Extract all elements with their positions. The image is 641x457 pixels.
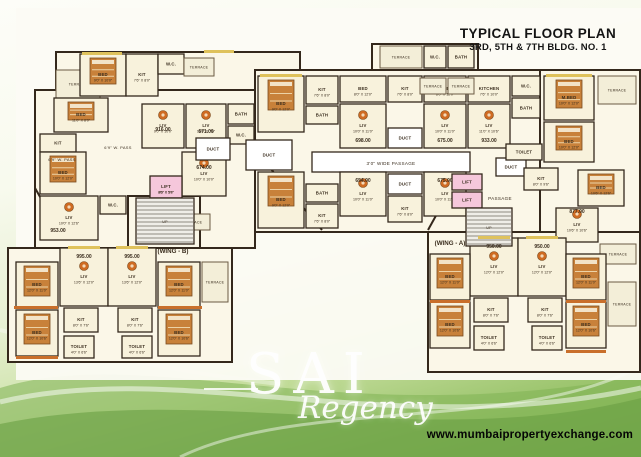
- svg-text:8'0" X 7'6": 8'0" X 7'6": [127, 324, 144, 328]
- svg-text:BED: BED: [58, 170, 68, 175]
- room-bed: BED10'6" X 12'6": [578, 170, 624, 206]
- svg-text:KIT: KIT: [138, 72, 146, 77]
- unit-area: 950.00: [534, 244, 550, 250]
- website-url: www.mumbaipropertyexchange.com: [427, 429, 633, 441]
- svg-text:W.C.: W.C.: [521, 84, 531, 89]
- room-bed: BED9'0" X 10'0": [80, 54, 126, 96]
- svg-text:DUCT: DUCT: [263, 153, 276, 158]
- room-terrace: TERRACE: [598, 76, 636, 104]
- svg-text:LIV: LIV: [485, 123, 492, 128]
- room-bed: BED12'0" X 10'6": [566, 302, 606, 348]
- unit-area: 877.00: [569, 209, 585, 215]
- svg-text:LIV: LIV: [490, 264, 497, 269]
- svg-text:10'0" X 12'0": 10'0" X 12'0": [559, 102, 580, 106]
- room-bed: BED8'0" X 12'0": [340, 76, 386, 102]
- room-kit: KIT7'6" X 8'0": [126, 54, 158, 96]
- svg-text:TERRACE: TERRACE: [190, 66, 209, 70]
- svg-text:13'6" X 12'0": 13'6" X 12'0": [74, 281, 95, 285]
- svg-text:BED: BED: [445, 322, 455, 327]
- svg-text:KIT: KIT: [401, 86, 409, 91]
- svg-text:BATH: BATH: [455, 55, 467, 60]
- room-toilet: TOILET4'0" X 6'6": [64, 336, 94, 358]
- svg-text:7'6" X 8'0": 7'6" X 8'0": [397, 93, 414, 97]
- svg-text:TERRACE: TERRACE: [613, 303, 632, 307]
- room-bed: BED9'0" X 12'0": [258, 76, 304, 132]
- svg-text:KIT: KIT: [487, 307, 495, 312]
- svg-text:10'0" X 12'0": 10'0" X 12'0": [559, 146, 580, 150]
- svg-text:TERRACE: TERRACE: [392, 56, 411, 60]
- svg-text:LIV: LIV: [202, 123, 209, 128]
- page-title: TYPICAL FLOOR PLAN: [438, 26, 638, 41]
- svg-text:BED: BED: [32, 282, 42, 287]
- svg-text:TOILET: TOILET: [481, 335, 498, 340]
- svg-text:KIT: KIT: [54, 141, 62, 146]
- svg-text:9'0" X 12'0": 9'0" X 12'0": [272, 108, 291, 112]
- svg-text:8'0" X 12'0": 8'0" X 12'0": [354, 93, 373, 97]
- room-bath: BATH: [228, 104, 254, 124]
- room-bed: BED11'0" X 8'0": [54, 98, 108, 132]
- svg-text:BED: BED: [564, 139, 574, 144]
- svg-text:DUCT: DUCT: [505, 165, 518, 170]
- room-duct: DUCT: [388, 174, 422, 194]
- svg-text:4'0" X 6'6": 4'0" X 6'6": [481, 342, 498, 346]
- unit-area: 671.00: [198, 129, 214, 135]
- svg-text:BED: BED: [276, 197, 286, 202]
- unit-area: 950.00: [486, 244, 502, 250]
- room-liv: LIV9'0" X 10'0": [142, 104, 184, 148]
- unit-area: 675.00: [437, 138, 453, 144]
- svg-text:12'0" X 12'0": 12'0" X 12'0": [532, 271, 553, 275]
- svg-text:8'0" X 7'6": 8'0" X 7'6": [73, 324, 90, 328]
- svg-text:LIFT: LIFT: [462, 180, 472, 185]
- room-duct: DUCT: [388, 128, 422, 148]
- svg-text:BATH: BATH: [235, 112, 247, 117]
- unit-area: 675.00: [437, 178, 453, 184]
- svg-text:7'6" X 10'0": 7'6" X 10'0": [480, 93, 499, 97]
- svg-text:BED: BED: [358, 86, 368, 91]
- svg-text:BED: BED: [445, 274, 455, 279]
- svg-text:LIV: LIV: [359, 191, 366, 196]
- room-w-c-: W.C.: [512, 76, 540, 96]
- svg-text:4'0" X 6'6": 4'0" X 6'6": [71, 351, 88, 355]
- room-kit: KIT8'0" X 7'6": [474, 298, 508, 322]
- room-bed: BED10'0" X 12'0": [544, 122, 594, 162]
- svg-text:12'0" X 10'6": 12'0" X 10'6": [27, 337, 48, 341]
- svg-text:BED: BED: [276, 101, 286, 106]
- svg-text:LIV: LIV: [128, 274, 135, 279]
- room-toilet: TOILET4'0" X 6'6": [532, 326, 562, 350]
- svg-text:10'0" X 11'0": 10'0" X 11'0": [435, 130, 456, 134]
- svg-text:11'0" X 10'6": 11'0" X 10'6": [479, 130, 500, 134]
- svg-text:TERRACE: TERRACE: [609, 253, 628, 257]
- svg-text:DUCT: DUCT: [207, 147, 220, 152]
- room-toilet: TOILET4'0" X 6'6": [122, 336, 152, 358]
- unit-area: 654.00: [355, 178, 371, 184]
- unit-area: 995.00: [124, 254, 140, 260]
- svg-text:8'6" X 5'0": 8'6" X 5'0": [159, 191, 173, 195]
- svg-text:11'0" X 8'0": 11'0" X 8'0": [72, 119, 91, 123]
- svg-text:7'6" X 8'0": 7'6" X 8'0": [134, 79, 151, 83]
- room-bed: BED12'0" X 11'0": [430, 254, 470, 300]
- svg-text:KITCHEN: KITCHEN: [479, 86, 500, 91]
- svg-text:TOILET: TOILET: [539, 335, 556, 340]
- room-duct: DUCT: [246, 140, 292, 170]
- room-bath: BATH: [306, 106, 338, 124]
- room-terrace: TERRACE: [448, 78, 474, 94]
- room-kit: KIT8'0" X 7'6": [118, 308, 152, 332]
- room-bed: BED12'0" X 10'6": [16, 310, 58, 356]
- svg-text:M.BED: M.BED: [562, 95, 577, 100]
- svg-text:KIT: KIT: [537, 176, 545, 181]
- svg-text:LIFT: LIFT: [161, 184, 171, 189]
- unit-area: 916.00: [155, 127, 171, 133]
- svg-text:12'0" X 11'0": 12'0" X 11'0": [576, 281, 597, 285]
- room-lift: LIFT: [452, 174, 482, 190]
- room-bed: BED9'0" X 12'0": [258, 172, 304, 228]
- wing-label: (WING - A): [435, 240, 466, 247]
- svg-text:7'6" X 8'0": 7'6" X 8'0": [314, 94, 331, 98]
- page-subtitle: 3RD, 5TH & 7TH BLDG. NO. 1: [438, 42, 638, 53]
- svg-text:LIV: LIV: [80, 274, 87, 279]
- svg-text:3'0" WIDE PASSAGE: 3'0" WIDE PASSAGE: [367, 161, 416, 166]
- svg-text:KIT: KIT: [318, 213, 326, 218]
- svg-text:PASSAGE: PASSAGE: [488, 196, 512, 201]
- svg-text:UP: UP: [162, 220, 168, 224]
- svg-text:8'0" X 9'6": 8'0" X 9'6": [533, 183, 550, 187]
- svg-text:DUCT: DUCT: [399, 182, 412, 187]
- floor-plan-svg: TERRACEBED9'0" X 10'0"KIT7'6" X 8'0"W.C.…: [0, 0, 641, 457]
- svg-text:BATH: BATH: [316, 191, 328, 196]
- room-kit: KIT7'6" X 8'0": [306, 204, 338, 228]
- svg-text:BED: BED: [596, 185, 606, 190]
- room-bed: BED12'0" X 11'0": [158, 262, 200, 308]
- svg-text:W.C.: W.C.: [430, 55, 440, 60]
- svg-text:KIT: KIT: [541, 307, 549, 312]
- svg-text:W.C.: W.C.: [108, 203, 118, 208]
- svg-text:TERRACE: TERRACE: [424, 85, 443, 89]
- svg-text:BED: BED: [174, 330, 184, 335]
- room-liv: LIV10'0" X 12'6": [40, 196, 98, 240]
- room-duct: DUCT: [196, 138, 230, 160]
- svg-text:9'0" X 12'0": 9'0" X 12'0": [272, 204, 291, 208]
- svg-text:W.C.: W.C.: [236, 133, 246, 138]
- room-kit: KIT7'6" X 8'0": [388, 76, 422, 102]
- svg-text:TERRACE: TERRACE: [608, 89, 627, 93]
- svg-text:8'0" X 7'6": 8'0" X 7'6": [483, 314, 500, 318]
- svg-text:12'0" X 10'6": 12'0" X 10'6": [440, 329, 461, 333]
- svg-text:6'9" W. PASS: 6'9" W. PASS: [104, 145, 132, 150]
- room-duct: DUCT: [496, 158, 526, 176]
- room-bath: BATH: [306, 184, 338, 202]
- svg-text:12'0" X 10'6": 12'0" X 10'6": [576, 329, 597, 333]
- svg-text:TERRACE: TERRACE: [206, 281, 225, 285]
- svg-text:KIT: KIT: [401, 206, 409, 211]
- room-terrace: TERRACE: [202, 262, 228, 302]
- room-toilet: TOILET4'0" X 6'6": [474, 326, 504, 350]
- svg-text:UP: UP: [486, 226, 492, 230]
- svg-text:W.C.: W.C.: [166, 62, 176, 67]
- room-terrace: TERRACE: [184, 58, 214, 76]
- room-kit: KIT7'6" X 8'0": [388, 196, 422, 222]
- svg-text:10'0" X 11'0": 10'0" X 11'0": [353, 130, 374, 134]
- room-kit: KIT8'0" X 9'6": [524, 168, 558, 190]
- svg-text:12'0" X 10'6": 12'0" X 10'6": [169, 337, 190, 341]
- svg-text:7'6" X 8'0": 7'6" X 8'0": [314, 220, 331, 224]
- svg-text:LIV: LIV: [441, 123, 448, 128]
- room-m-bed: M.BED10'0" X 12'0": [544, 76, 594, 120]
- room-kit: KIT: [40, 134, 76, 152]
- title-block: TYPICAL FLOOR PLAN 3RD, 5TH & 7TH BLDG. …: [438, 26, 638, 53]
- svg-text:9'0" X 10'0": 9'0" X 10'0": [94, 79, 113, 83]
- svg-text:12'0" X 11'0": 12'0" X 11'0": [27, 289, 48, 293]
- room-kit: KIT8'0" X 7'6": [64, 308, 98, 332]
- room-terrace: TERRACE: [608, 282, 636, 326]
- room-terrace: TERRACE: [380, 46, 422, 68]
- svg-text:BED: BED: [581, 322, 591, 327]
- room-lift: LIFT8'6" X 5'0"8'6" X 5'0": [150, 176, 182, 198]
- room-bed: BED12'0" X 11'0": [566, 254, 606, 300]
- svg-text:BED: BED: [98, 72, 108, 77]
- unit-area: 674.00: [196, 165, 212, 171]
- room-toilet: TOILET: [506, 144, 542, 160]
- svg-text:10'0" X 11'0": 10'0" X 11'0": [353, 198, 374, 202]
- svg-text:BATH: BATH: [316, 113, 328, 118]
- svg-text:LIFT: LIFT: [462, 198, 472, 203]
- svg-text:TERRACE: TERRACE: [452, 85, 471, 89]
- svg-text:KIT: KIT: [318, 87, 326, 92]
- wing-label: (WING - B): [158, 248, 189, 255]
- svg-text:12'0" X 11'0": 12'0" X 11'0": [169, 289, 190, 293]
- room-w-c-: W.C.: [100, 196, 126, 214]
- room-w-c-: W.C.: [158, 54, 184, 74]
- svg-text:8'0" X 7'6": 8'0" X 7'6": [537, 314, 554, 318]
- svg-text:10'6" X 12'6": 10'6" X 12'6": [591, 192, 612, 196]
- svg-text:LIV: LIV: [359, 123, 366, 128]
- svg-text:10'0" X 10'0": 10'0" X 10'0": [194, 178, 215, 182]
- svg-text:TOILET: TOILET: [71, 344, 88, 349]
- room-terrace: TERRACE: [420, 78, 446, 94]
- svg-text:4'0" X 6'6": 4'0" X 6'6": [129, 351, 146, 355]
- svg-text:13'6" X 12'0": 13'6" X 12'0": [122, 281, 143, 285]
- svg-text:12'0" X 12'0": 12'0" X 12'0": [484, 271, 505, 275]
- svg-text:TOILET: TOILET: [516, 150, 533, 155]
- svg-text:KIT: KIT: [131, 317, 139, 322]
- unit-area: 995.00: [76, 254, 92, 260]
- room-bed: BED12'0" X 10'6": [158, 310, 200, 356]
- svg-text:BED: BED: [581, 274, 591, 279]
- svg-text:LIV: LIV: [573, 222, 580, 227]
- svg-text:LIV: LIV: [538, 264, 545, 269]
- svg-text:10'0" X 12'0": 10'0" X 12'0": [53, 177, 74, 181]
- unit-area: 933.00: [481, 138, 497, 144]
- svg-text:BED: BED: [76, 112, 86, 117]
- svg-text:6'9" W. PASS: 6'9" W. PASS: [48, 157, 76, 162]
- unit-area: 698.00: [355, 138, 371, 144]
- svg-text:BED: BED: [174, 282, 184, 287]
- room-lift: LIFT: [452, 192, 482, 208]
- room-bath: BATH: [512, 98, 540, 118]
- svg-text:10'6" X 10'6": 10'6" X 10'6": [567, 229, 588, 233]
- svg-text:7'6" X 8'0": 7'6" X 8'0": [397, 213, 414, 217]
- room-bed: BED12'0" X 10'6": [430, 302, 470, 348]
- svg-text:12'0" X 11'0": 12'0" X 11'0": [440, 281, 461, 285]
- room-bed: BED12'0" X 11'0": [16, 262, 58, 308]
- svg-text:KIT: KIT: [77, 317, 85, 322]
- svg-text:10'0" X 12'6": 10'0" X 12'6": [59, 222, 80, 226]
- svg-text:4'0" X 6'6": 4'0" X 6'6": [539, 342, 556, 346]
- svg-text:DUCT: DUCT: [399, 136, 412, 141]
- unit-area: 953.00: [50, 228, 66, 234]
- svg-text:BATH: BATH: [520, 106, 532, 111]
- room-kit: KIT8'0" X 7'6": [528, 298, 562, 322]
- svg-text:TOILET: TOILET: [129, 344, 146, 349]
- svg-text:BED: BED: [32, 330, 42, 335]
- svg-text:LIV: LIV: [65, 215, 72, 220]
- svg-text:LIV: LIV: [441, 191, 448, 196]
- svg-text:LIV: LIV: [200, 171, 207, 176]
- room-kit: KIT7'6" X 8'0": [306, 76, 338, 104]
- brochure-page: TERRACEBED9'0" X 10'0"KIT7'6" X 8'0"W.C.…: [0, 0, 641, 457]
